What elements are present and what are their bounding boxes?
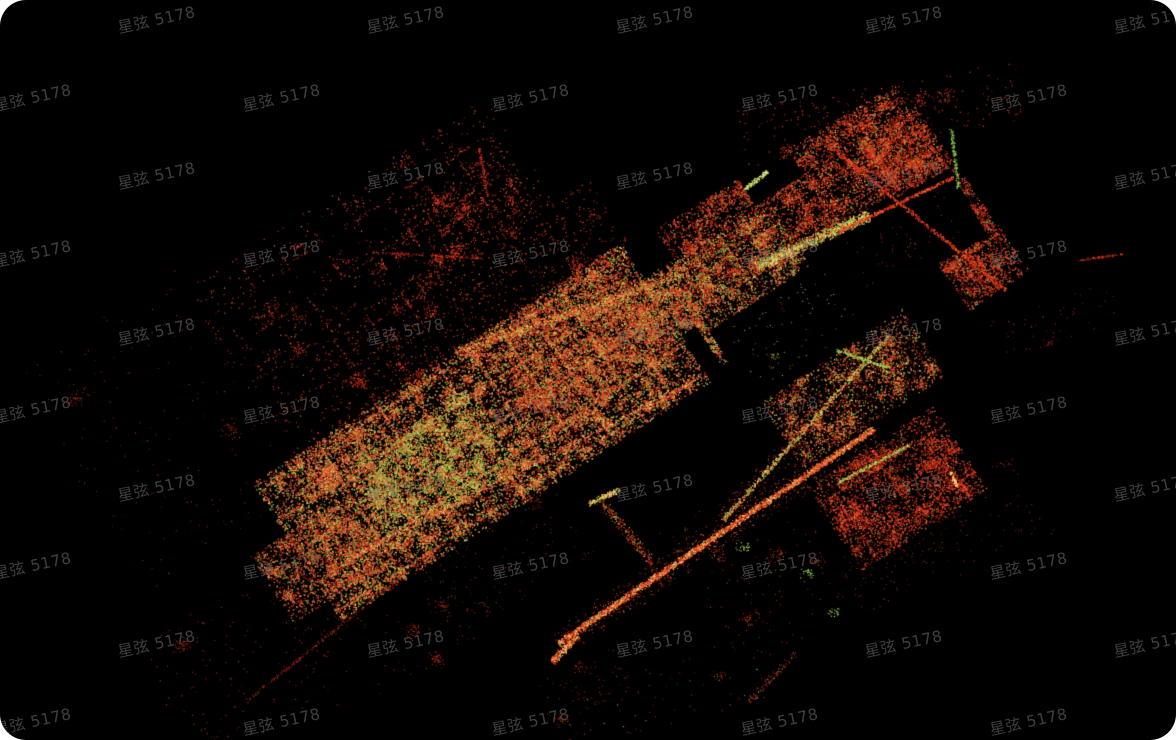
point-cloud-canvas[interactable]: [0, 0, 1176, 740]
point-cloud-viewport: 星弦 5178星弦 5178星弦 5178星弦 5178星弦 5178星弦 51…: [0, 0, 1176, 740]
